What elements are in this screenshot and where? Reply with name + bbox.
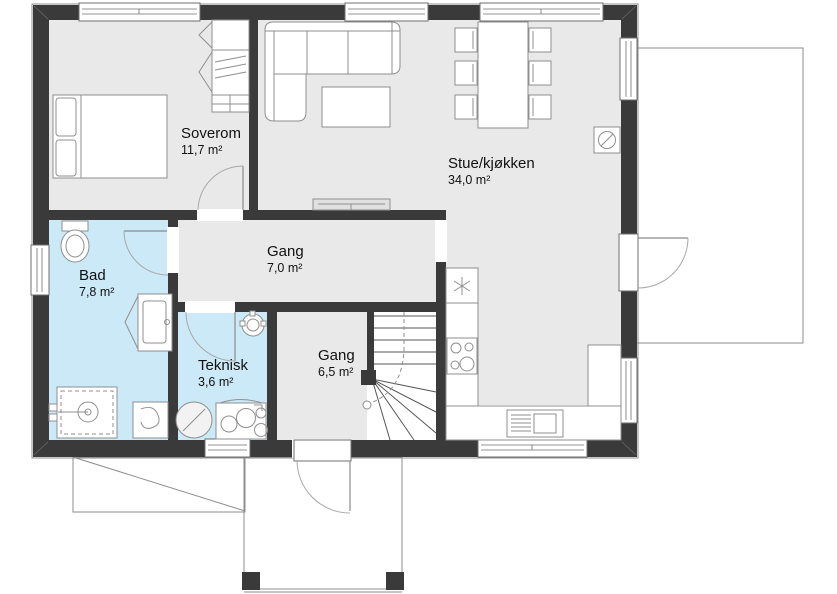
- floor-plan-drawing: [0, 0, 837, 594]
- room-name: Gang: [267, 243, 304, 261]
- dining-chair: [529, 28, 551, 52]
- room-name: Teknisk: [198, 357, 248, 375]
- cooktop: [447, 338, 477, 374]
- dining-chair: [529, 61, 551, 85]
- bathroom-floor-fixture: [133, 402, 168, 438]
- room-area: 34,0 m²: [448, 173, 535, 188]
- room-area: 11,7 m²: [181, 143, 241, 158]
- room-label-gang-6-5: Gang 6,5 m²: [318, 347, 355, 380]
- tv-bench: [313, 199, 390, 210]
- room-area: 3,6 m²: [198, 375, 248, 390]
- room-name: Stue/kjøkken: [448, 155, 535, 173]
- dining-chair: [455, 61, 477, 85]
- terrace-outline: [630, 48, 803, 343]
- ramp: [73, 457, 245, 512]
- floor-gang-7: [178, 220, 436, 302]
- room-area: 7,0 m²: [267, 261, 304, 276]
- shower: [49, 387, 117, 438]
- dining-chair: [455, 28, 477, 52]
- floor-plan: Soverom 11,7 m² Stue/kjøkken 34,0 m² Gan…: [0, 0, 837, 594]
- toilet: [61, 221, 89, 262]
- room-label-gang-7: Gang 7,0 m²: [267, 243, 304, 276]
- coffee-table: [322, 87, 390, 127]
- bed: [53, 95, 167, 178]
- window-kitchen-right: [620, 358, 637, 423]
- porch-post: [386, 572, 404, 590]
- floor-stairwell: [367, 312, 436, 440]
- pillow: [56, 98, 76, 136]
- room-area: 7,8 m²: [79, 285, 114, 300]
- window-soverom-top: [79, 3, 200, 21]
- wall-soverom-stue: [249, 20, 258, 210]
- window-stue-right: [620, 38, 637, 100]
- room-label-bad: Bad 7,8 m²: [79, 267, 114, 300]
- window-bad-left: [31, 245, 49, 295]
- ventilation-unit: [216, 400, 268, 440]
- opening-bad: [167, 227, 179, 273]
- pillow: [56, 140, 76, 176]
- window-stue-top-1: [345, 3, 428, 21]
- fridge: [446, 268, 478, 303]
- dining-chair: [455, 95, 477, 119]
- porch-post: [242, 572, 260, 590]
- window-stue-top-2: [480, 3, 603, 21]
- wall-teknisk-east: [267, 312, 277, 440]
- room-label-stue-kjokken: Stue/kjøkken 34,0 m²: [448, 155, 535, 188]
- kitchen-sink: [507, 410, 563, 437]
- window-kitchen-bottom: [478, 439, 587, 457]
- water-heater: [176, 402, 212, 438]
- dining-chair: [529, 95, 551, 119]
- window-teknisk-bottom: [205, 439, 250, 457]
- opening-soverom: [197, 209, 243, 221]
- door-terrace: [619, 234, 688, 291]
- room-label-teknisk: Teknisk 3,6 m²: [198, 357, 248, 390]
- stair-newel-post: [361, 370, 376, 385]
- stair-walk-line-start: [363, 401, 371, 409]
- wall-gang-top: [49, 210, 446, 220]
- room-label-soverom: Soverom 11,7 m²: [181, 125, 241, 158]
- room-area: 6,5 m²: [318, 365, 355, 380]
- dining-table: [478, 22, 528, 128]
- wood-stove: [594, 127, 620, 153]
- opening-gang-stue: [435, 220, 447, 262]
- door-entrance: [294, 440, 351, 513]
- dining-set: [455, 22, 551, 128]
- entrance-porch: [242, 457, 404, 592]
- opening-teknisk: [185, 301, 235, 313]
- exterior-wall-left: [33, 5, 49, 457]
- room-name: Bad: [79, 267, 114, 285]
- room-name: Soverom: [181, 125, 241, 143]
- stair-stringer-wall: [367, 302, 374, 378]
- room-name: Gang: [318, 347, 355, 365]
